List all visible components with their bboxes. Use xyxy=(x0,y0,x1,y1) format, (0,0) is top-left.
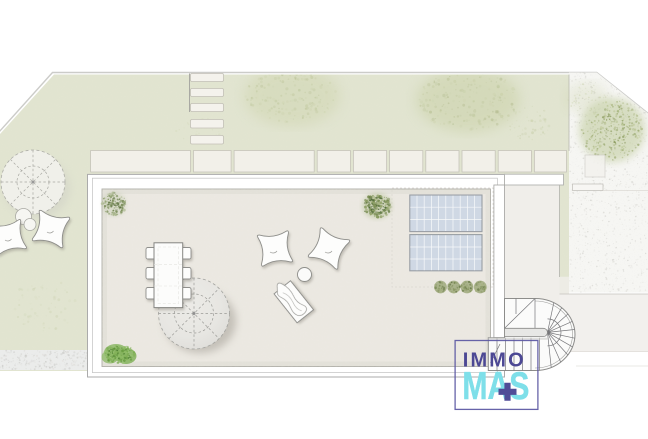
svg-text:MAS: MAS xyxy=(462,365,529,408)
